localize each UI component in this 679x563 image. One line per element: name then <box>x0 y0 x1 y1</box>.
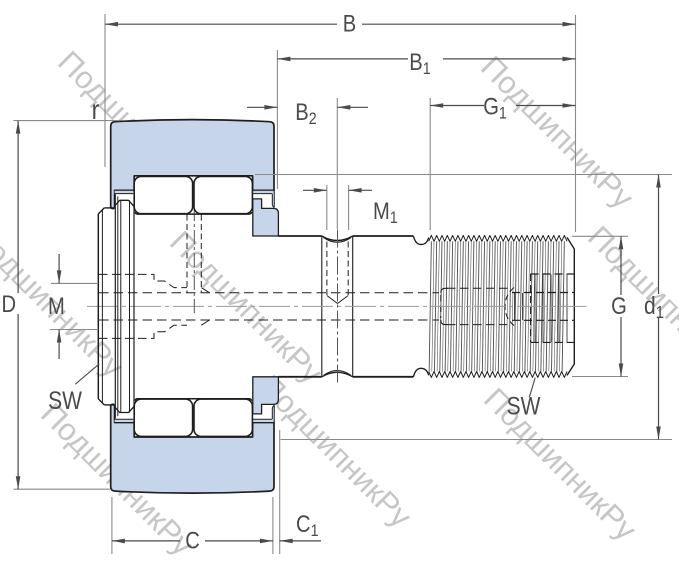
svg-text:ПодшипникРу: ПодшипникРу <box>163 224 330 391</box>
svg-text:SW: SW <box>507 392 541 420</box>
svg-text:ПодшипникРу: ПодшипникРу <box>477 381 644 548</box>
svg-text:C1: C1 <box>296 510 319 540</box>
svg-text:ПодшипникРу: ПодшипникРу <box>581 219 679 386</box>
svg-text:B1: B1 <box>409 48 430 78</box>
svg-text:G: G <box>611 292 627 319</box>
svg-text:C: C <box>185 527 200 554</box>
svg-text:B2: B2 <box>295 98 316 128</box>
svg-text:M1: M1 <box>373 197 398 227</box>
svg-text:ПодшипникРу: ПодшипникРу <box>0 218 131 385</box>
svg-text:ПодшипникРу: ПодшипникРу <box>474 49 641 216</box>
svg-text:M: M <box>48 292 65 319</box>
svg-text:D: D <box>2 290 17 317</box>
svg-text:B: B <box>343 10 356 37</box>
svg-text:r: r <box>92 95 100 125</box>
svg-text:SW: SW <box>48 386 82 414</box>
